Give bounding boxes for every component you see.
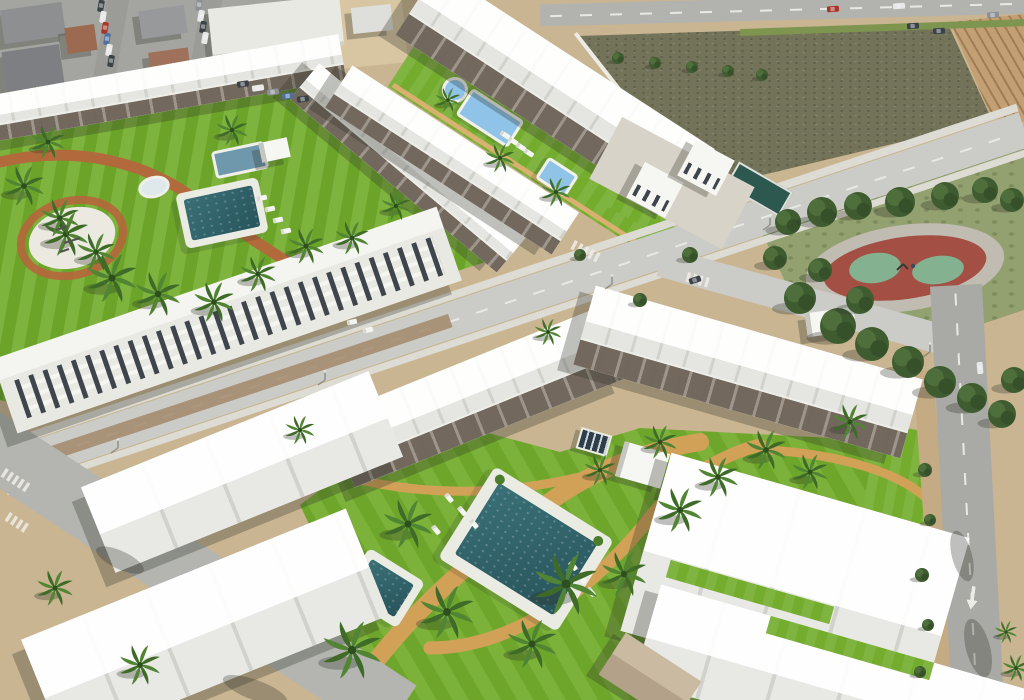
town-building-terracotta [64,24,97,54]
lane-markings [954,294,977,697]
town-building [351,4,393,34]
lane-markings [550,3,1020,17]
pool-community1 [183,185,260,241]
aerial-render-scene [0,0,1024,700]
planter [493,473,507,487]
